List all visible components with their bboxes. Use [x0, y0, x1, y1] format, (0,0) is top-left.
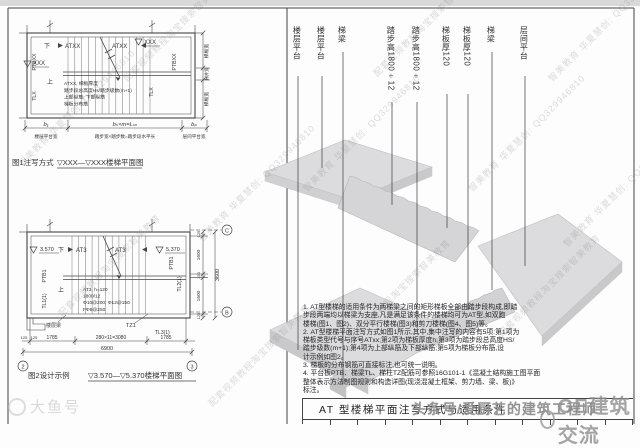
watermark-bottom-right-text: GE建筑交流: [558, 390, 640, 448]
plan2-tl-left: TL1(1): [42, 293, 48, 309]
iso-label-floor-platform-1: 楼层平台: [292, 26, 305, 60]
plan2-dim-1785a: 1785: [46, 335, 57, 341]
plan2-callouts: 楼层梁 TZ1 TL3(1): [27, 314, 170, 336]
title-block-cell: [413, 420, 441, 425]
plan2-right-dim-texts: 125 1600 150 1600 125 3600: [196, 230, 221, 319]
plan2-rdim-1600a: 1600: [196, 249, 202, 260]
plan2-ptb-left: PTB1: [42, 269, 48, 282]
title-block-cell: [331, 420, 359, 425]
plan2-note-3: Φ10@200; Φ12@150: [83, 300, 130, 306]
elevation-triangle-icon: [135, 39, 142, 45]
title-block-cell: [386, 420, 414, 425]
plan2-down-label: 下: [58, 247, 64, 254]
plan2-dim-off2: 125: [31, 335, 38, 340]
iso-label-stair-beam-1: 梯梁: [337, 26, 350, 43]
fish-logo-icon: [8, 398, 26, 416]
plan2-dim-texts: 125 125 1785 280×11=3080 1785 6900: [21, 335, 172, 352]
plan2-tl-right: TL2(1): [177, 276, 183, 292]
plan1-dim-texts: b₁ bₛ×m=Lₛₙ bₚ 楼层平台宽 踏步宽×踏步数=踏步段水平长 层间平台…: [35, 122, 206, 140]
plan2-ptb-right: PTB1: [169, 256, 175, 269]
plan2-flight-left-label: AT3: [76, 248, 87, 254]
plan2: 3.570 5.370 下 AT3 AT3 上 PTB1 TL1(1) PTB1…: [18, 219, 232, 381]
plan2-rdim-125a: 125: [196, 230, 201, 237]
watermark-bottom-left: 大鱼号: [8, 396, 81, 417]
plan2-landing-edge: [63, 276, 186, 280]
plan1-ptb-left: PTBXX: [32, 53, 38, 71]
plan2-caption: 图2设计示例 ▽3.570—▽5.370楼梯平面图: [28, 370, 196, 381]
plan2-corner-ticks: [19, 219, 190, 232]
plan2-dim-total: 6900: [101, 346, 113, 352]
plan1-dim-sub2: 踏步宽×踏步数=踏步段水平长: [95, 133, 156, 140]
title-block-cell: [496, 420, 524, 425]
plan2-axis-right: C B: [222, 225, 232, 317]
plan2-axis-3: 3: [190, 365, 193, 371]
watermark-bottom-right: GE建筑交流: [540, 390, 640, 448]
plan2-note-1: AT3, h=120: [83, 287, 108, 293]
iso-label-mid-platform: 层间平台: [519, 26, 532, 60]
plan1-flight-left-label: ATXX: [65, 44, 80, 50]
plan1-tl-right: TLX: [149, 87, 155, 97]
plan1-dim-bs: bₛ×m=Lₛₙ: [113, 122, 138, 128]
plan2-rdim-125b: 125: [196, 312, 201, 319]
plan2-axis-2: 2: [21, 365, 24, 371]
plan2-rdim-total: 3600: [215, 269, 221, 281]
plan2-floor-beam-label: 楼层梁: [46, 322, 61, 329]
plan1-note-3: 上部纵筋; 下部纵筋: [64, 94, 105, 101]
plan2-note-2: 1800/12: [83, 294, 101, 300]
plan1-annotation-block: ATXX, 梯板厚度 踏步段总高度Hs/踏步级数(m+1) 上部纵筋; 下部纵筋…: [64, 80, 132, 107]
plan1: XXX XXX 下 ATXX ATXX 上 PTBXX TLX PTBXX TL…: [12, 20, 210, 168]
drawing-sheet: { "diagram1": { "caption_label": "图1注写方式…: [0, 0, 640, 424]
plan2-dim-3080: 280×11=3080: [96, 335, 127, 341]
title-block-cell: [358, 420, 386, 425]
plan1-right-dim-texts: 梯板宽 梯井宽 梯板宽: [203, 44, 210, 107]
plan2-elevation-marks: 3.570 5.370: [30, 247, 185, 253]
plan2-annotation-block: AT3, h=120 1800/12 Φ10@200; Φ12@150 FΦ8@…: [83, 287, 130, 313]
plan1-dim-sub1: 楼层平台宽: [35, 133, 58, 140]
plan1-down-label: 下: [44, 43, 50, 50]
iso-label-floor-platform-2: 楼层平台: [316, 26, 329, 60]
plan1-caption-label: 图1注写方式: [12, 157, 54, 167]
plan2-axis-c: C: [225, 229, 229, 235]
plan2-axis-b: B: [225, 311, 229, 317]
community-logo-icon: [540, 410, 555, 429]
plan1-ptb-right: PTBXX: [172, 53, 178, 71]
plan1-dim-bp: bₚ: [191, 122, 197, 128]
plan1-right-dim-3: 梯板宽: [203, 92, 210, 107]
plan1-note-2: 踏步段总高度Hs/踏步级数(m+1): [64, 87, 132, 94]
elevation-triangle-icon: [156, 247, 163, 253]
plan1-tl-left: TLX: [32, 91, 38, 101]
iso-label-stair-beam-2: 梯梁: [486, 26, 499, 43]
plan2-axis-bottom: 2 3: [18, 361, 197, 371]
plan1-right-dim-2: 梯井宽: [203, 67, 210, 80]
arrow-left-icon: [142, 247, 147, 252]
plan1-caption-title: ▽XXX—▽XXX楼梯平面图: [57, 157, 144, 167]
arrow-right-icon: [58, 43, 63, 48]
plan2-up-label: 上: [58, 286, 64, 294]
plan1-up-label: 上: [47, 78, 53, 86]
plan2-dim-off1: 125: [21, 335, 28, 340]
plan2-tz-label: TZ1: [126, 323, 136, 329]
plan2-caption-title: ▽3.570—▽5.370楼梯平面图: [88, 370, 182, 380]
plan1-flight-right-label: ATXX: [112, 44, 127, 50]
plan1-note-4: 梯板分布筋: [64, 100, 88, 107]
arrow-right-icon: [68, 247, 73, 252]
plan2-note-4: FΦ8@250: [83, 307, 106, 313]
plan2-caption-label: 图2设计示例: [28, 370, 70, 380]
title-block-cell: [303, 420, 331, 425]
plan2-rdim-150: 150: [196, 271, 201, 278]
plan1-caption: 图1注写方式 ▽XXX—▽XXX楼梯平面图: [12, 157, 144, 168]
iso-label-riser-height-1: 踏步高1800÷12: [386, 26, 399, 91]
plan1-flight-labels: 下 ATXX ATXX 上: [44, 43, 146, 86]
iso-label-slab-thickness-2: 梯板厚120: [462, 26, 475, 66]
iso-label-slab-thickness-1: 梯板厚120: [441, 26, 454, 66]
plan1-note-1: ATXX, 梯板厚度: [64, 80, 98, 87]
plan2-flight-right-label: AT3: [115, 248, 126, 254]
plan1-dim-b1: b₁: [43, 122, 48, 128]
iso-label-riser-height-2: 踏步高1800÷12: [411, 26, 424, 91]
notes-text: 1. AT型楼梯的适用条件为两梯梁之间的矩形梯板全部由踏步段构成,即踏 步段两端…: [303, 304, 635, 395]
plan2-elev-left: 3.570: [40, 247, 54, 253]
plan1-dim-sub3: 层间平台宽: [183, 133, 206, 140]
plan2-flight-labels: 下 AT3 AT3 上: [58, 247, 147, 294]
title-block-cell: [468, 420, 496, 425]
upper-stair-flight: [338, 176, 479, 262]
plan1-right-dim-1: 梯板宽: [203, 44, 210, 59]
watermark-bottom-left-text: 大鱼号: [30, 396, 81, 417]
plan2-rdim-1600b: 1600: [196, 290, 202, 301]
plan1-landing-edge: [63, 72, 191, 76]
plan2-elev-right: 5.370: [166, 247, 180, 253]
title-block-cell: [441, 420, 469, 425]
plan2-dim-1785b: 1785: [160, 335, 171, 341]
